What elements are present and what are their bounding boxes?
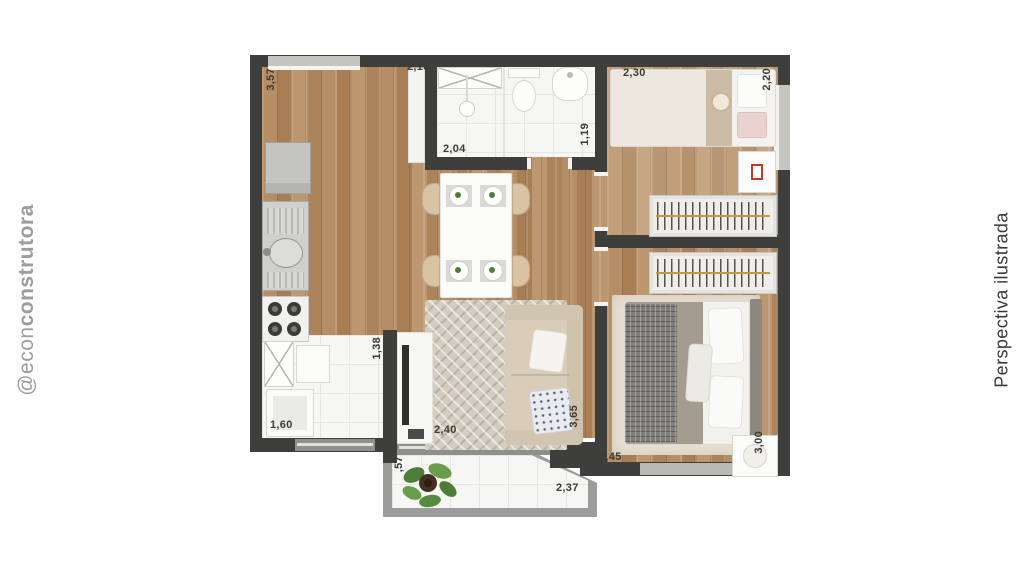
bathroom-faucet: [567, 72, 573, 78]
brand-handle-prefix: @econ: [15, 326, 38, 395]
dimension-bedroom2-width: 2,45: [599, 451, 622, 463]
wall-between-bedrooms: [595, 235, 790, 248]
wall-left: [250, 55, 262, 452]
wall-hall-upper: [595, 65, 607, 175]
accent-pillow: [685, 343, 713, 403]
bedroom2-door-jamb-bottom: [594, 302, 608, 306]
dining-chair: [512, 255, 530, 287]
wall-service-living: [383, 330, 397, 463]
dining-chair: [422, 183, 440, 215]
burner-icon: [268, 322, 282, 336]
sink-basin: [269, 238, 303, 268]
cushion-seam: [511, 374, 569, 376]
drainboard-bottom: [267, 272, 304, 288]
toilet-bowl: [512, 80, 536, 112]
dimension-kitchen-height: 3,57: [265, 68, 277, 91]
single-bed: [610, 69, 776, 147]
place-setting: [480, 185, 506, 207]
dimension-bedroom1-depth: 2,20: [761, 68, 773, 91]
place-setting: [446, 185, 472, 207]
round-cushion: [711, 92, 731, 112]
place-setting: [446, 260, 472, 282]
bedroom2-window: [640, 463, 740, 475]
pillow-white: [708, 307, 745, 365]
fridge: [265, 142, 311, 194]
tv-stand: [397, 332, 433, 444]
service-window: [295, 439, 375, 451]
media-box: [408, 429, 424, 439]
wardrobe-bedroom1: [650, 196, 776, 236]
dimension-kitchen-width: 2,18: [407, 61, 430, 73]
potted-plant: [400, 457, 460, 513]
bedroom2-door-jamb-top: [594, 247, 608, 251]
nightstand-bedroom1: [738, 151, 776, 193]
burner-icon: [287, 322, 301, 336]
floor-plan: 3,57 2,18 2,04 1,19 2,30 2,20 1,38 1,60 …: [250, 55, 790, 517]
dimension-service-depth: 1,38: [371, 337, 383, 360]
laundry-tank: [264, 341, 294, 387]
dimension-balcony-width: 2,37: [556, 482, 579, 494]
wall-bathroom-bottom-stub: [572, 157, 595, 170]
plaid-throw: [625, 304, 677, 442]
dimension-service-width: 1,60: [270, 419, 293, 431]
wardrobe-bedroom2: [650, 253, 776, 293]
double-bed: [624, 301, 750, 445]
dimension-balcony-depth: ,57: [393, 456, 405, 472]
bedroom1-window: [779, 85, 790, 170]
stove: [262, 296, 309, 342]
sink-faucet: [263, 248, 271, 256]
dimension-bedroom2-depth: 3,00: [753, 431, 765, 454]
dimension-living-depth: 3,65: [568, 405, 580, 428]
perspective-caption: Perspectiva ilustrada: [992, 212, 1013, 387]
burner-icon: [287, 302, 301, 316]
shower-partition: [503, 67, 505, 157]
dimension-bathroom-depth: 1,19: [579, 123, 591, 146]
kitchen-window: [268, 56, 360, 66]
wall-bathroom-left: [425, 65, 437, 157]
wall-hall-lower: [595, 305, 607, 462]
burner-icon: [268, 302, 282, 316]
wall-bathroom-bottom: [425, 157, 527, 170]
hanger-rod: [656, 215, 770, 217]
pillow-white: [708, 375, 745, 429]
bedroom1-door-jamb-bottom: [594, 227, 608, 231]
double-bed-headboard: [750, 299, 762, 447]
sofa-armrest: [505, 305, 583, 320]
place-setting: [480, 260, 506, 282]
single-bed-duvet: [611, 70, 709, 146]
bathroom-door-jamb-right: [568, 158, 572, 169]
dimension-bedroom1-width: 2,30: [623, 67, 646, 79]
dining-chair: [512, 183, 530, 215]
hanger-rod: [656, 272, 770, 274]
shower-stem: [466, 75, 468, 103]
dimension-living-width: 2,40: [434, 424, 457, 436]
kitchen-sink-counter: [262, 201, 309, 291]
kitchen-window-sill: [268, 66, 360, 70]
pillow-pink: [737, 112, 767, 138]
shower-box: [438, 67, 502, 89]
bedroom1-door-jamb-top: [594, 172, 608, 176]
picture-frame: [751, 164, 763, 180]
shower-head-icon: [459, 101, 475, 117]
tv: [402, 345, 409, 425]
sofa-pillow-white: [528, 329, 567, 373]
drainboard-top: [267, 208, 304, 234]
sofa-pillow-floral: [528, 387, 573, 436]
bathroom-sink: [552, 67, 588, 101]
dimension-bathroom-width: 2,04: [443, 143, 466, 155]
toilet-tank: [508, 68, 540, 78]
brand-handle-suffix: construtora: [15, 204, 38, 326]
kitchen-tall-cabinet: [408, 68, 425, 163]
dining-chair: [422, 255, 440, 287]
bathroom-door-jamb-left: [527, 158, 531, 169]
washing-machine: [296, 345, 330, 383]
